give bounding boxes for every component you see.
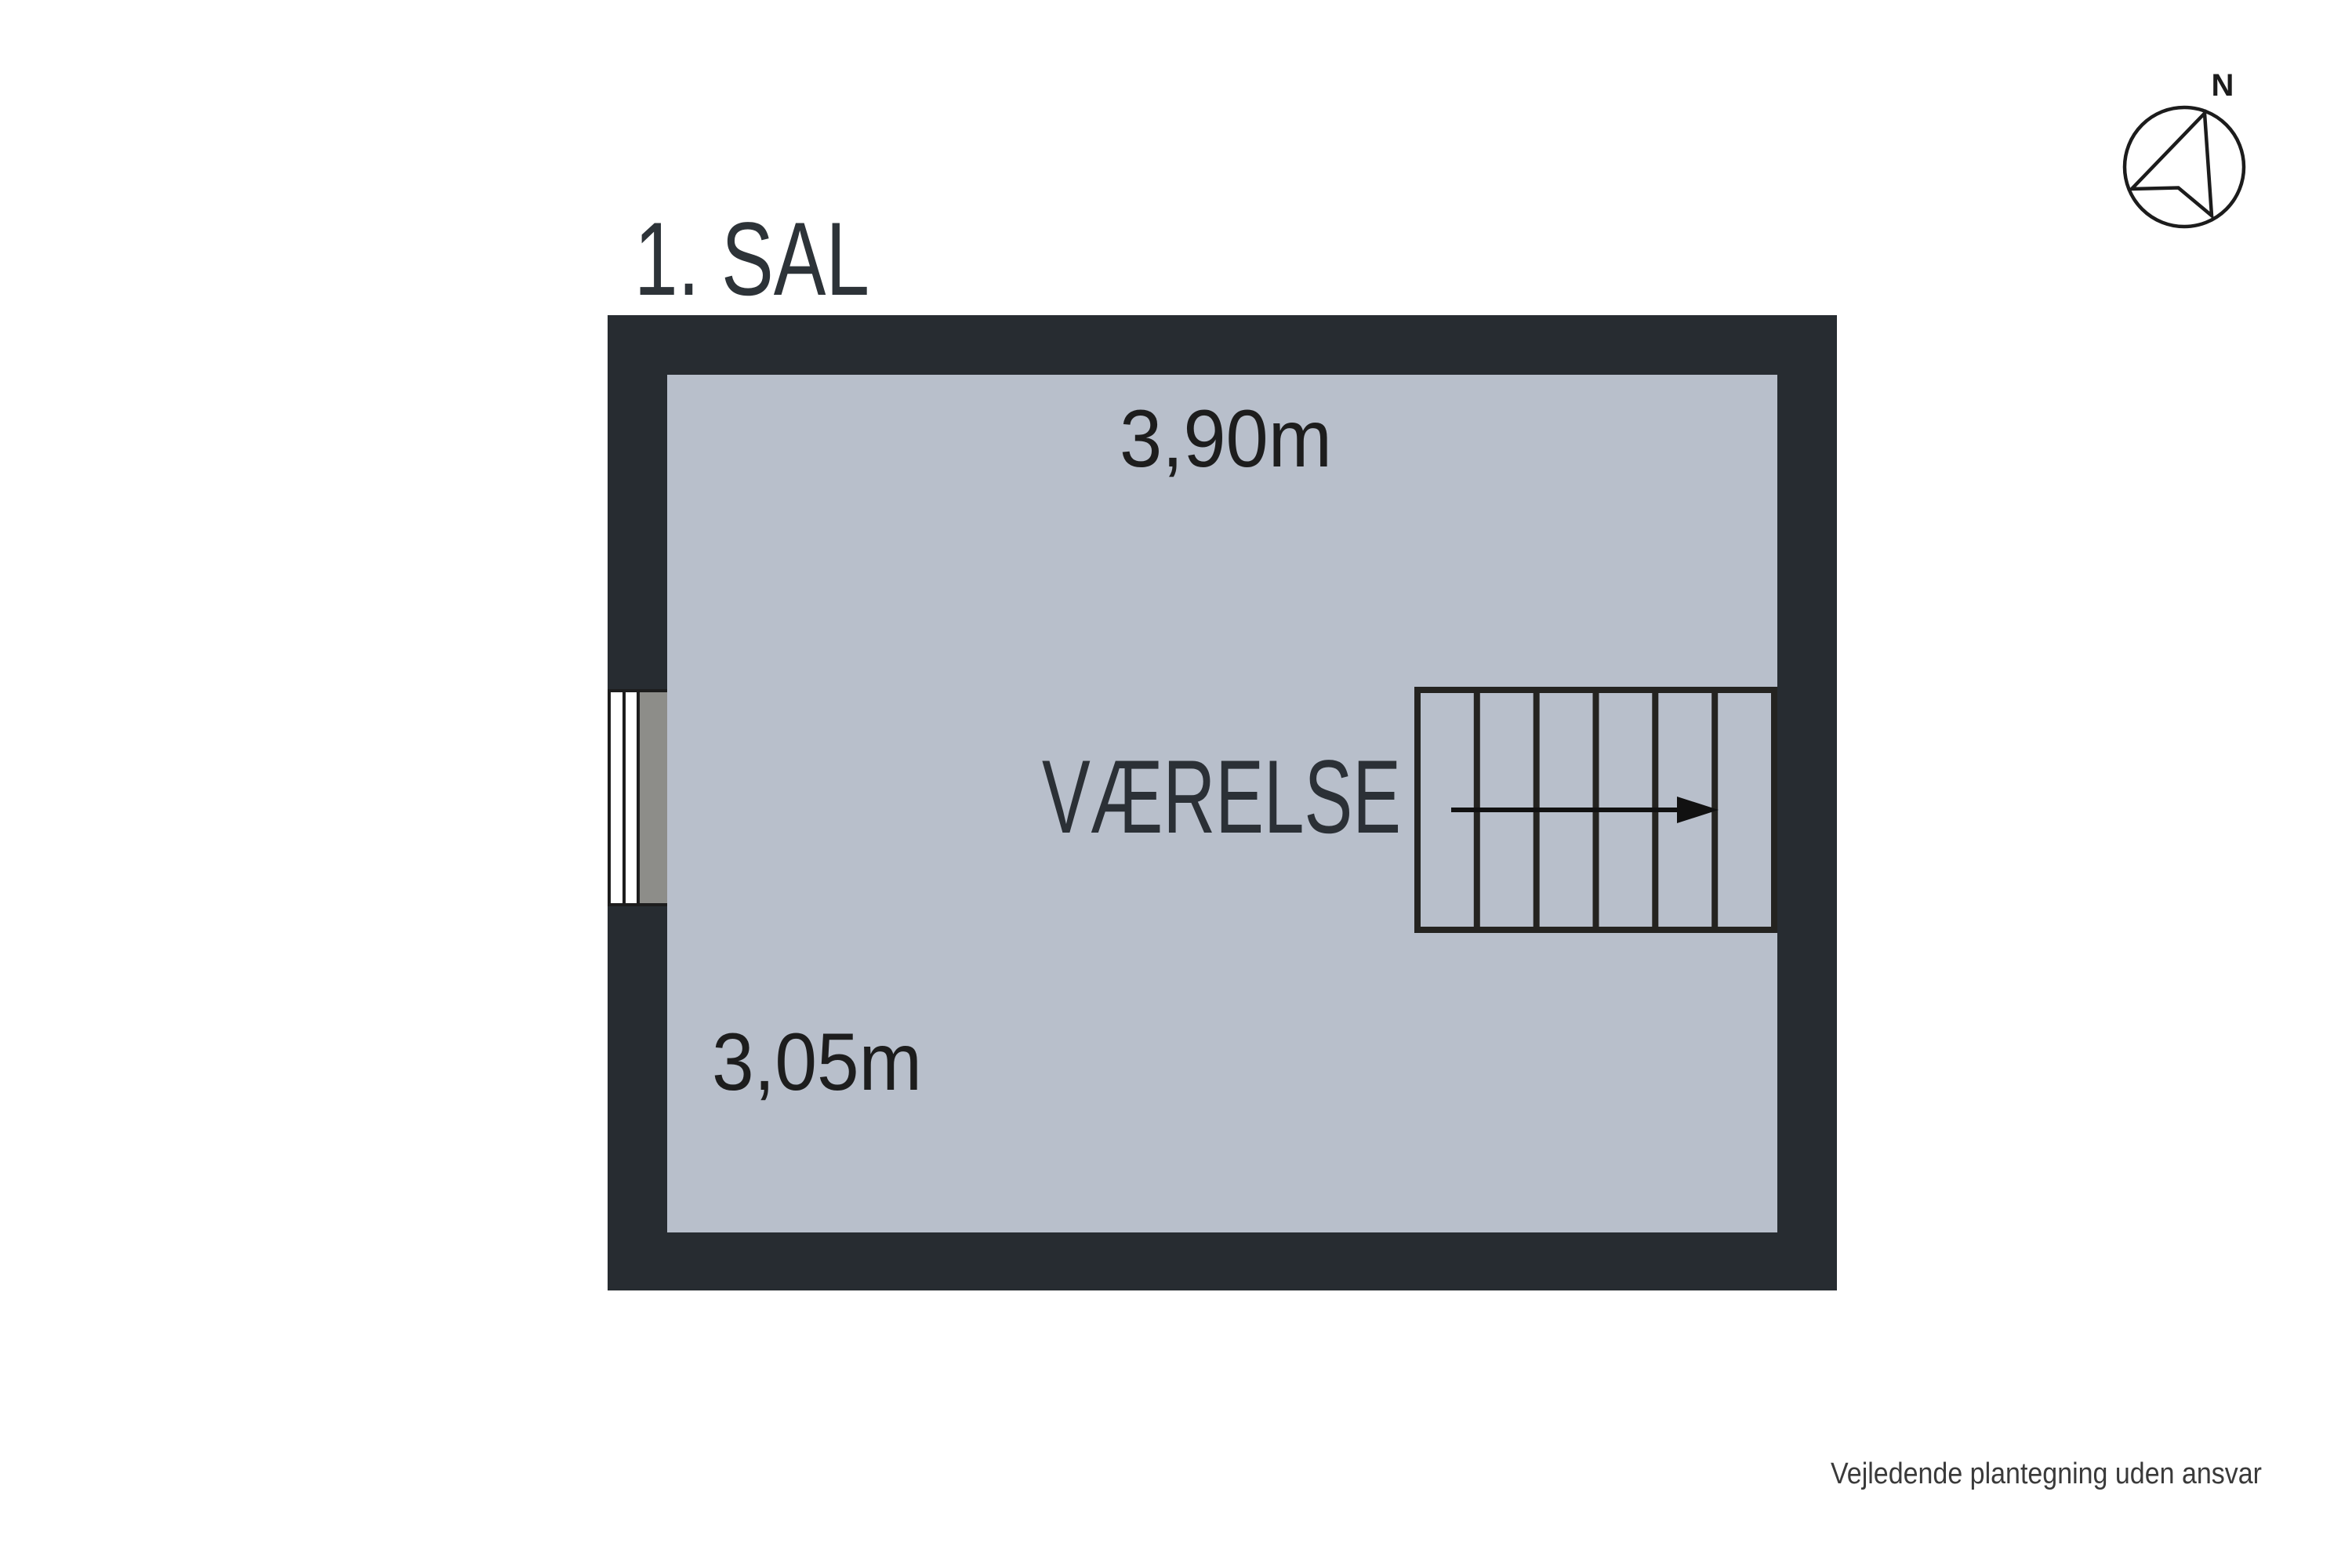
svg-text:3,90m: 3,90m <box>1120 394 1332 485</box>
svg-text:3,05m: 3,05m <box>712 1017 922 1108</box>
svg-text:1. SAL: 1. SAL <box>634 201 869 318</box>
svg-text:VÆRELSE: VÆRELSE <box>1042 739 1401 855</box>
svg-text:Vejledende plantegning uden an: Vejledende plantegning uden ansvar <box>1831 1457 2262 1490</box>
svg-text:N: N <box>2212 68 2234 103</box>
